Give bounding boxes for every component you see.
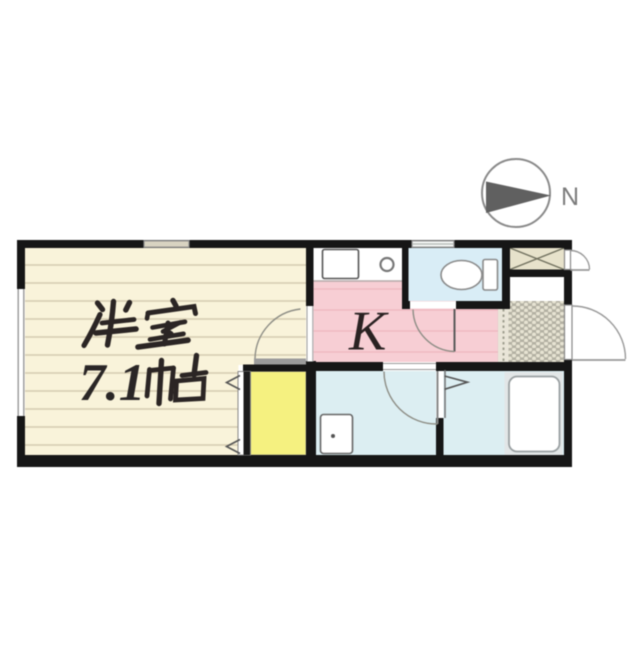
svg-text:7.1: 7.1 [79, 354, 145, 412]
svg-text:N: N [561, 183, 579, 211]
svg-text:K: K [348, 301, 389, 363]
